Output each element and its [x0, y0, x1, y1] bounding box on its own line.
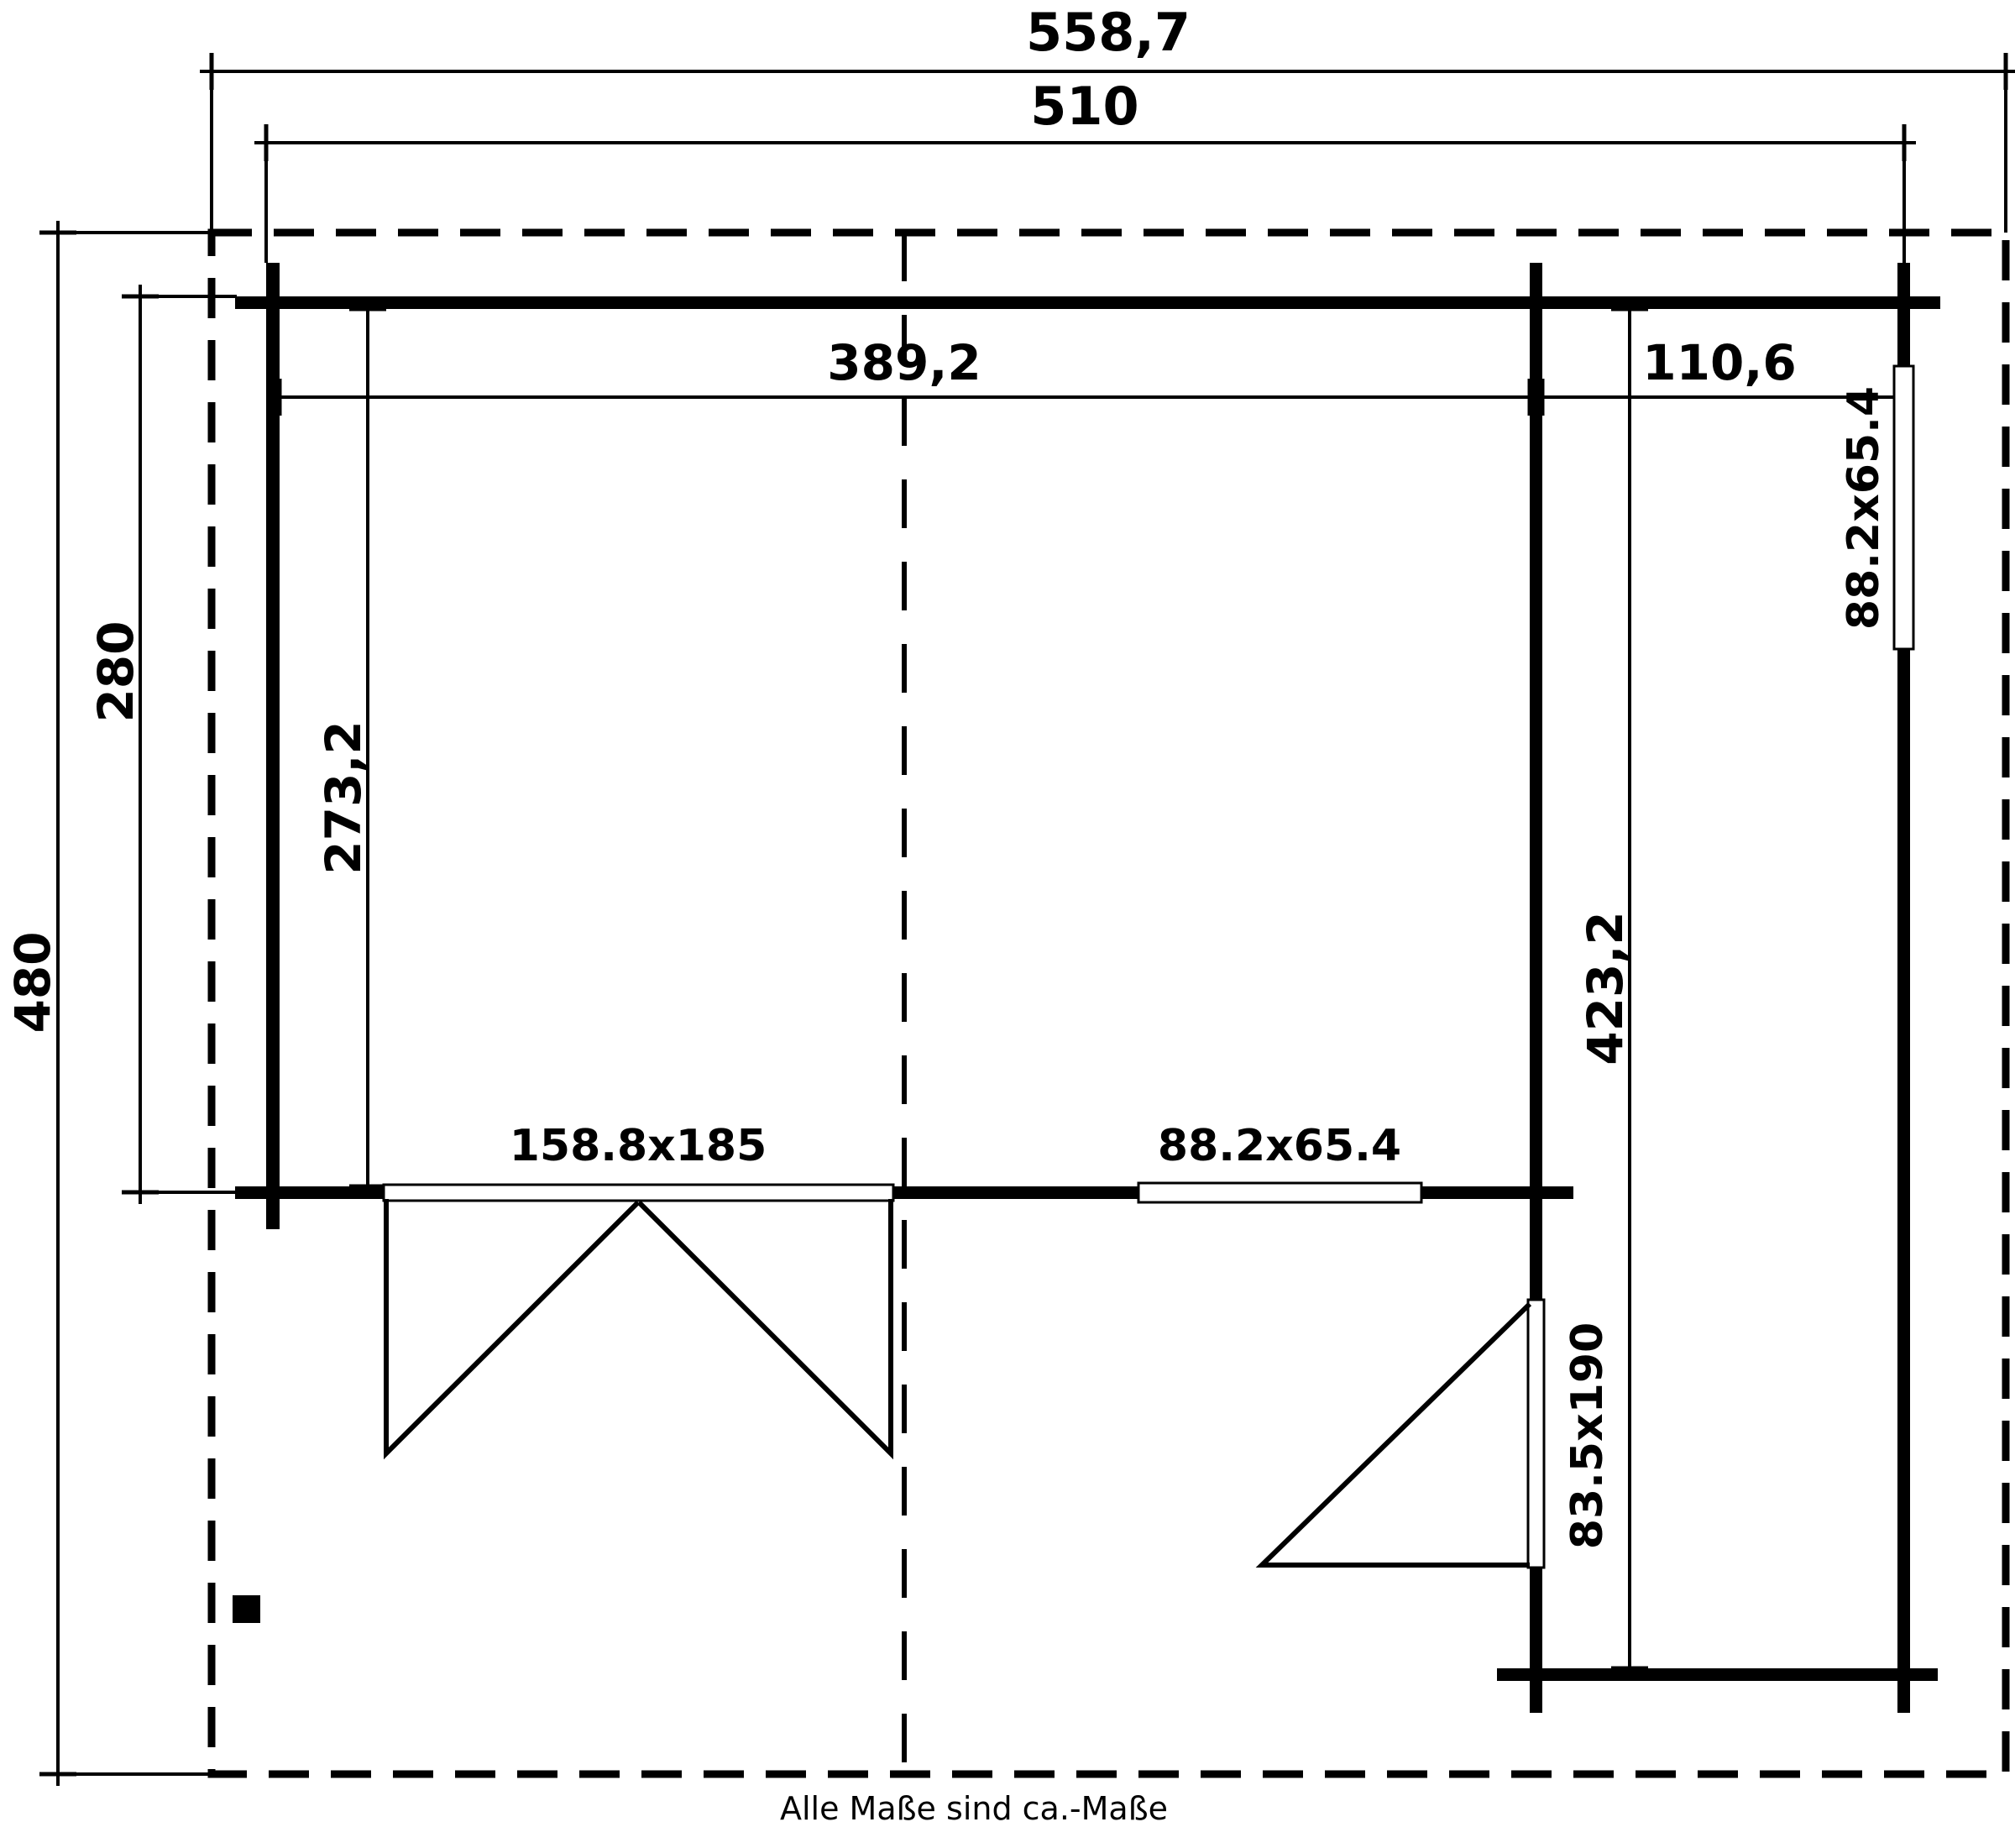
marker-square [233, 1595, 260, 1623]
wall-interior-lower [1530, 1568, 1542, 1713]
wall-right-lower [1897, 649, 1910, 1713]
window-bottom [1138, 1183, 1421, 1202]
wall-bottom-annex [1497, 1668, 1938, 1681]
window-right [1894, 366, 1913, 649]
caption-note: Alle Maße sind ca.-Maße [780, 1790, 1168, 1827]
floor-plan: 558,7510389,2110,6480280273,2423,2158.8x… [0, 0, 2015, 1848]
dim-room-width-label: 389,2 [827, 334, 981, 391]
wall-top [235, 296, 1940, 309]
label-double-door: 158.8x185 [510, 1121, 767, 1171]
label-window-bottom: 88.2x65.4 [1158, 1121, 1401, 1171]
double-door-frame [384, 1185, 893, 1201]
dim-annex-depth-label: 423,2 [1577, 911, 1634, 1065]
wall-bottom-main-c [1421, 1186, 1573, 1199]
dim-house-width-label: 510 [1030, 76, 1138, 137]
annex-door-frame [1528, 1300, 1544, 1568]
dim-annex-width-label: 110,6 [1642, 334, 1796, 391]
dim-room-inner-depth-label: 273,2 [315, 720, 372, 874]
label-annex-door: 83.5x190 [1562, 1322, 1613, 1549]
wall-left [266, 263, 280, 1229]
wall-right-upper [1897, 263, 1910, 366]
dim-room-outer-depth-label: 280 [87, 620, 144, 722]
dim-roof-width-label: 558,7 [1026, 2, 1191, 63]
drawing-background [0, 0, 2015, 1848]
wall-interior-upper [1530, 263, 1542, 1300]
dim-roof-depth-label: 480 [4, 931, 61, 1033]
wall-bottom-main-b [893, 1186, 1138, 1199]
label-window-right: 88.2x65.4 [1839, 386, 1889, 630]
wall-bottom-main-a [235, 1186, 384, 1199]
